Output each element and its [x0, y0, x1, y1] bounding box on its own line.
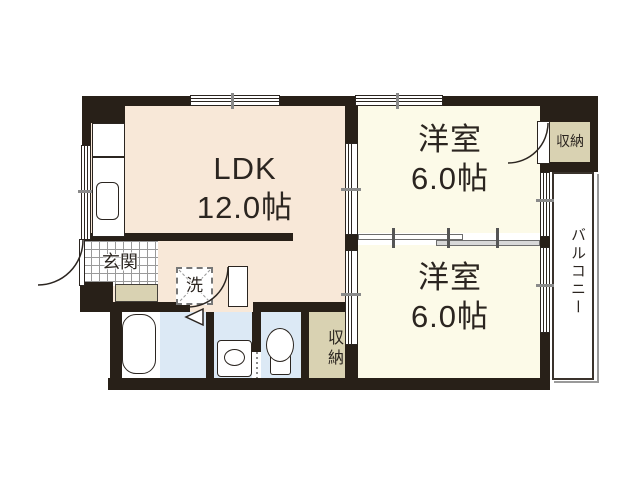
wall: [545, 162, 598, 172]
floor-plan: LDK 12.0帖 洋室 6.0帖 洋室 6.0帖 収納 収納 玄関 洗 バルコ…: [0, 0, 640, 480]
wall: [253, 302, 345, 312]
window-tick: [341, 188, 361, 191]
wall: [252, 312, 261, 352]
ldk-size: 12.0帖: [150, 188, 340, 227]
bathroom-floor: [160, 312, 206, 378]
entrance-door-arc: [38, 240, 83, 285]
entrance-label: 玄関: [84, 252, 156, 274]
washbasin-bowl: [224, 349, 245, 366]
wall: [301, 312, 309, 378]
western-top-name: 洋室: [360, 120, 540, 159]
storage-bottom-label: 収納: [311, 320, 343, 378]
wall: [590, 96, 598, 172]
window: [540, 172, 550, 237]
laundry-label: 洗: [176, 276, 213, 296]
sliding-door: [345, 250, 358, 345]
partition-tick: [392, 228, 395, 248]
window-tick: [396, 93, 399, 109]
western-bottom-size: 6.0帖: [360, 297, 540, 336]
window-tick: [231, 93, 234, 109]
wall: [540, 333, 550, 378]
window: [190, 95, 280, 106]
balcony-outer-line: [597, 174, 599, 383]
western-bottom-name: 洋室: [360, 258, 540, 297]
wall: [540, 237, 550, 247]
shoe-cabinet: [115, 284, 158, 302]
western-top-size: 6.0帖: [360, 159, 540, 198]
hall-door-leaf: [228, 266, 248, 307]
balcony-label: バルコニー: [562, 212, 586, 332]
bathtub: [122, 314, 156, 374]
storage-top-label: 収納: [550, 133, 590, 150]
wall: [110, 302, 122, 390]
toilet-bowl: [266, 328, 294, 362]
wall: [345, 235, 358, 250]
partition-tick: [447, 228, 450, 248]
window-tick: [536, 199, 554, 202]
balcony-outer-line: [554, 381, 599, 383]
ldk-name: LDK: [150, 149, 340, 188]
wall: [108, 378, 550, 390]
window: [540, 247, 550, 333]
window-tick: [341, 293, 361, 296]
western-bottom-label: 洋室 6.0帖: [360, 258, 540, 336]
kitchen-sink: [96, 182, 119, 220]
window: [355, 95, 443, 106]
kitchen-counter-divider: [92, 156, 125, 158]
western-top-label: 洋室 6.0帖: [360, 120, 540, 198]
wall: [82, 96, 598, 106]
wall: [82, 96, 91, 145]
room-partition-panel: [436, 240, 540, 246]
wall: [540, 163, 550, 172]
wall: [206, 312, 214, 378]
wall: [345, 345, 358, 390]
partition-tick: [496, 228, 499, 248]
ldk-label: LDK 12.0帖: [150, 149, 340, 227]
